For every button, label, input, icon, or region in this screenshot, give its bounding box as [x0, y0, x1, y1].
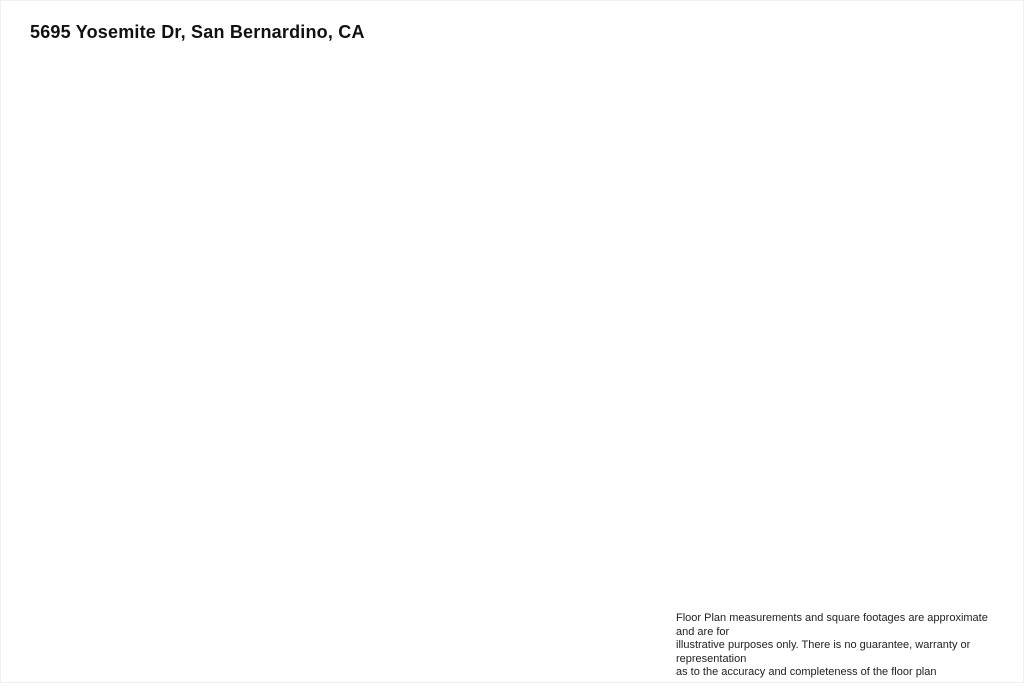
page-title: 5695 Yosemite Dr, San Bernardino, CA [30, 22, 365, 43]
disclaimer: Floor Plan measurements and square foota… [676, 612, 1006, 680]
page-background [0, 0, 1024, 683]
disclaimer-line-3: as to the accuracy and completeness of t… [676, 666, 1006, 680]
disclaimer-line-1: Floor Plan measurements and square foota… [676, 612, 1006, 639]
disclaimer-line-2: illustrative purposes only. There is no … [676, 639, 1006, 666]
